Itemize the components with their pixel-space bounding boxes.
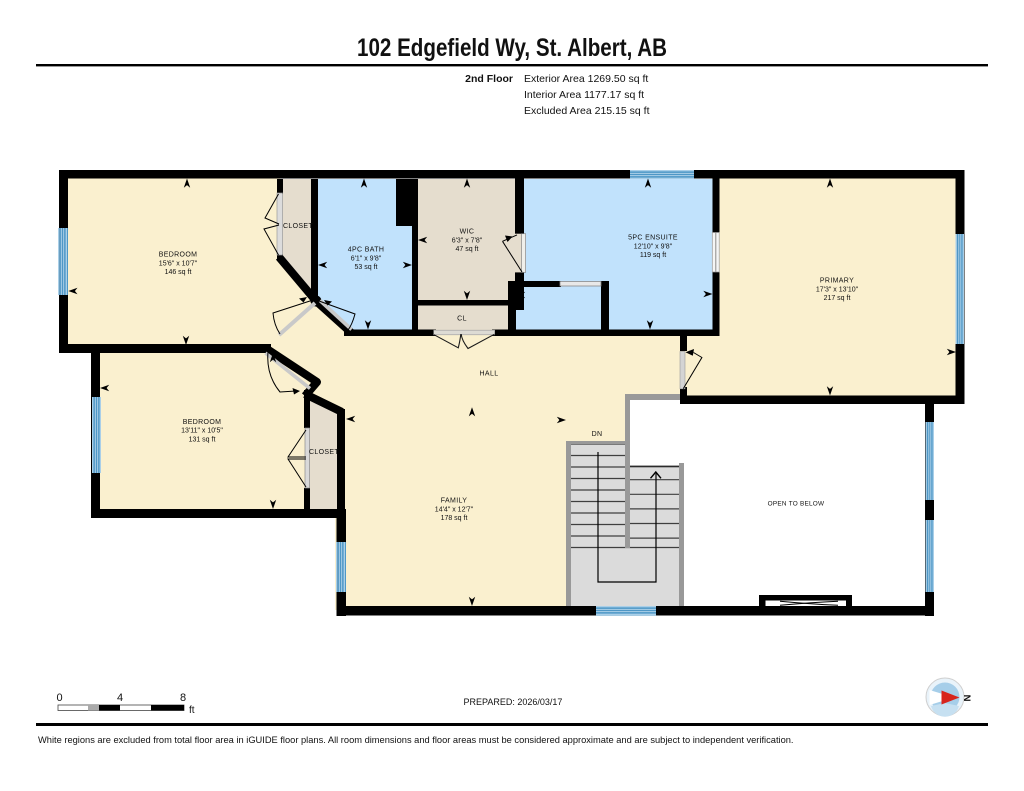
svg-text:PREPARED: 2026/03/17: PREPARED: 2026/03/17	[464, 697, 563, 707]
svg-text:CL: CL	[457, 316, 467, 323]
svg-text:53 sq ft: 53 sq ft	[355, 264, 378, 271]
svg-text:14'4" x 12'7": 14'4" x 12'7"	[435, 507, 474, 514]
svg-text:119 sq ft: 119 sq ft	[640, 252, 666, 259]
svg-text:131 sq ft: 131 sq ft	[189, 436, 216, 443]
svg-text:BEDROOM: BEDROOM	[159, 252, 198, 259]
svg-text:217 sq ft: 217 sq ft	[824, 295, 851, 302]
svg-text:0: 0	[56, 692, 62, 704]
svg-text:N: N	[961, 695, 972, 702]
svg-text:6'1" x 9'8": 6'1" x 9'8"	[351, 256, 382, 263]
svg-text:CLOSET: CLOSET	[309, 449, 339, 456]
svg-text:15'6" x 10'7": 15'6" x 10'7"	[159, 261, 198, 268]
svg-text:4PC BATH: 4PC BATH	[348, 247, 385, 254]
svg-text:4: 4	[117, 692, 123, 704]
svg-text:Excluded Area 215.15 sq ft: Excluded Area 215.15 sq ft	[524, 105, 650, 117]
svg-text:13'11" x 10'5": 13'11" x 10'5"	[181, 428, 223, 435]
svg-text:ft: ft	[189, 705, 195, 716]
svg-text:FAMILY: FAMILY	[441, 498, 467, 505]
svg-text:178 sq ft: 178 sq ft	[441, 515, 468, 522]
svg-text:8: 8	[180, 692, 186, 704]
svg-text:17'3" x 13'10": 17'3" x 13'10"	[816, 287, 859, 294]
svg-text:BEDROOM: BEDROOM	[183, 419, 222, 426]
svg-text:WIC: WIC	[460, 229, 475, 236]
svg-text:DN: DN	[592, 431, 603, 438]
svg-text:5PC ENSUITE: 5PC ENSUITE	[628, 235, 678, 242]
svg-text:HALL: HALL	[480, 371, 499, 378]
svg-text:OPEN TO BELOW: OPEN TO BELOW	[768, 501, 825, 508]
svg-text:47 sq ft: 47 sq ft	[456, 246, 479, 253]
svg-text:White regions are excluded fro: White regions are excluded from total fl…	[38, 735, 794, 745]
svg-text:PRIMARY: PRIMARY	[820, 278, 854, 285]
svg-text:6'3" x 7'8": 6'3" x 7'8"	[452, 238, 483, 245]
svg-text:12'10" x 9'8": 12'10" x 9'8"	[634, 244, 673, 251]
svg-text:2nd Floor: 2nd Floor	[465, 73, 513, 85]
svg-text:146 sq ft: 146 sq ft	[165, 269, 192, 276]
svg-text:102 Edgefield Wy, St. Albert,: 102 Edgefield Wy, St. Albert, AB	[357, 34, 667, 62]
svg-text:Exterior Area 1269.50 sq ft: Exterior Area 1269.50 sq ft	[524, 73, 648, 85]
svg-text:CLOSET: CLOSET	[283, 223, 313, 230]
svg-text:Interior Area 1177.17 sq ft: Interior Area 1177.17 sq ft	[524, 89, 644, 101]
